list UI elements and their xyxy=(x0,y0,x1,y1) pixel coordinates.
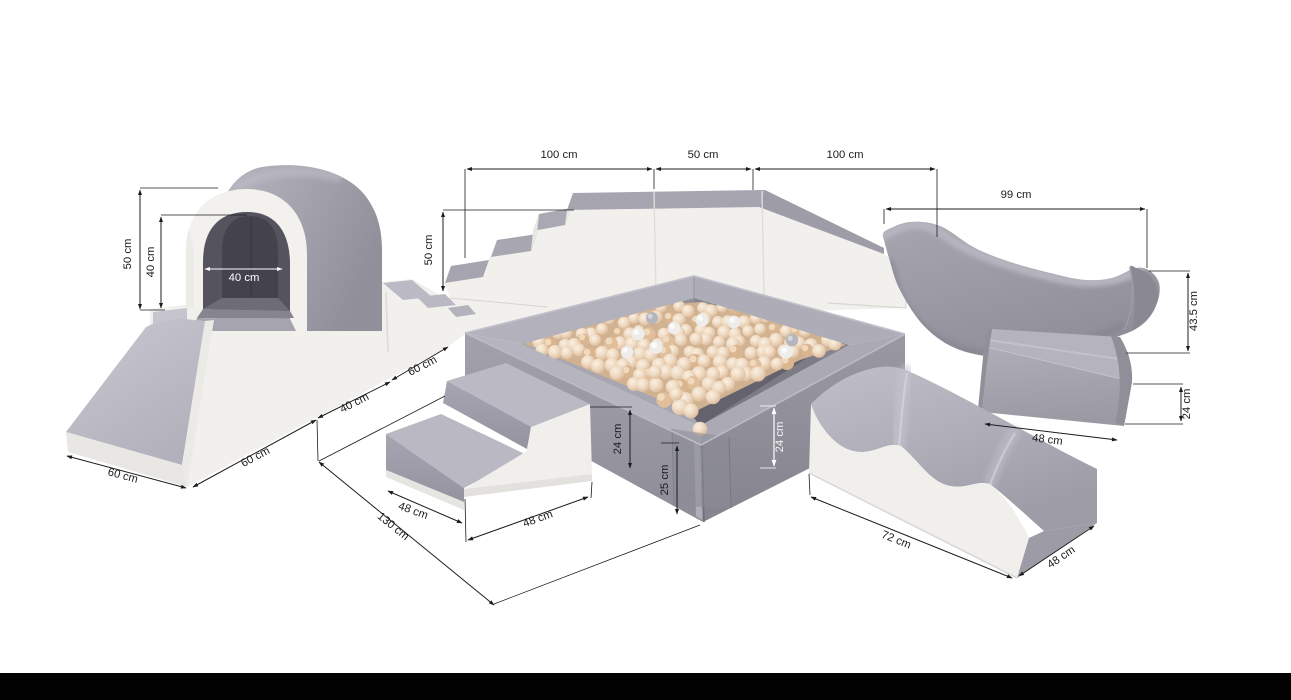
svg-text:24 cm: 24 cm xyxy=(612,424,624,455)
svg-text:25 cm: 25 cm xyxy=(659,465,671,496)
svg-text:50 cm: 50 cm xyxy=(122,239,134,270)
svg-text:24 cm: 24 cm xyxy=(774,422,786,453)
svg-text:43.5 cm: 43.5 cm xyxy=(1188,291,1200,331)
svg-text:100 cm: 100 cm xyxy=(540,149,577,161)
svg-text:50 cm: 50 cm xyxy=(688,149,719,161)
svg-text:40 cm: 40 cm xyxy=(145,247,157,278)
svg-text:40 cm: 40 cm xyxy=(229,272,260,284)
svg-text:99 cm: 99 cm xyxy=(1001,189,1032,201)
svg-text:100 cm: 100 cm xyxy=(826,149,863,161)
svg-text:50 cm: 50 cm xyxy=(423,235,435,266)
svg-text:24 cm: 24 cm xyxy=(1181,389,1193,420)
